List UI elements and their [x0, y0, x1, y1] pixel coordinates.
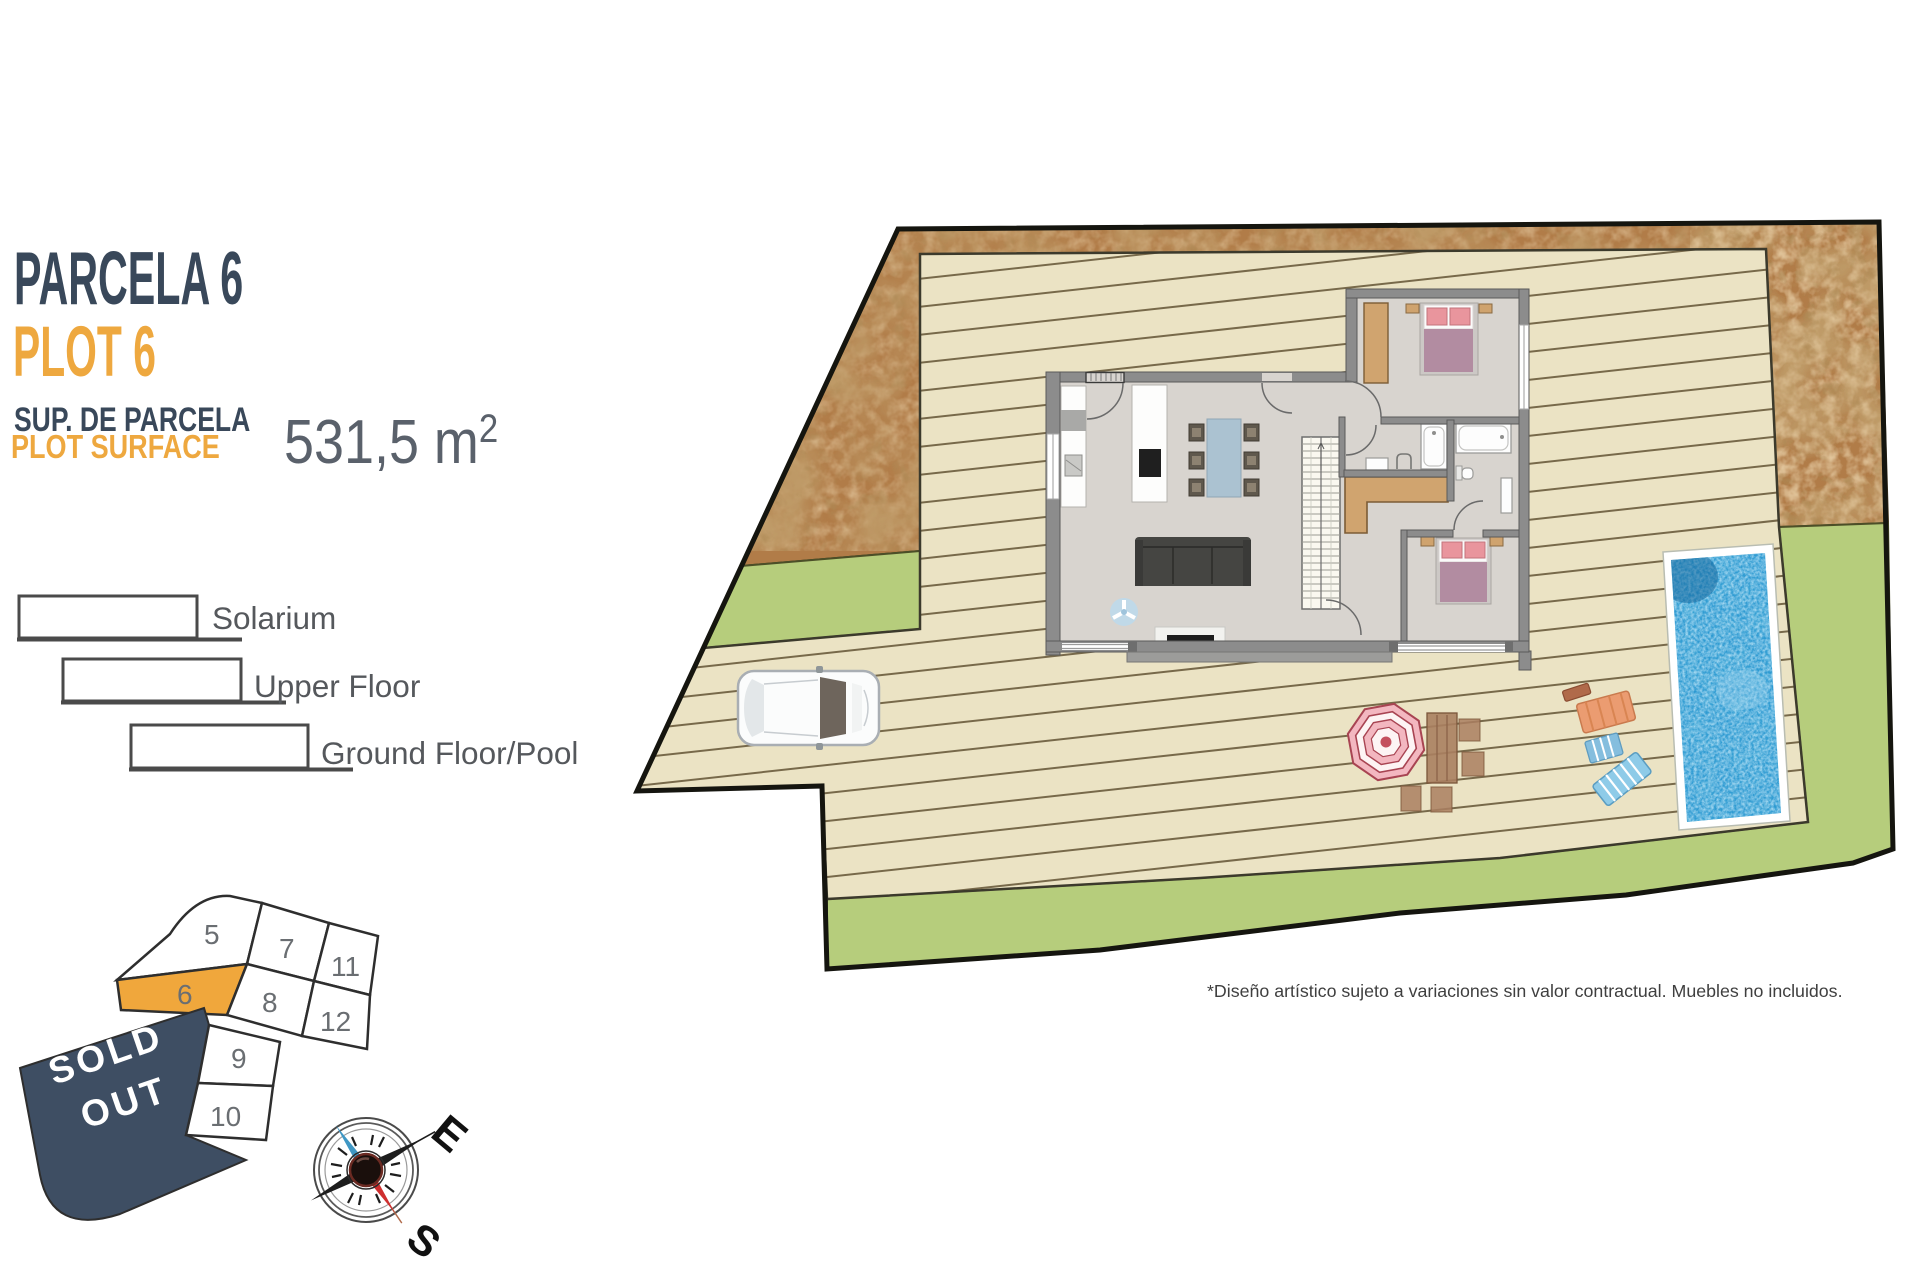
- svg-text:5: 5: [204, 919, 220, 950]
- svg-text:Upper Floor: Upper Floor: [254, 668, 420, 704]
- svg-text:6: 6: [177, 979, 193, 1010]
- svg-text:10: 10: [210, 1101, 241, 1132]
- svg-text:*Diseño artístico sujeto a var: *Diseño artístico sujeto a variaciones s…: [1207, 981, 1843, 1001]
- svg-text:PARCELA 6: PARCELA 6: [14, 236, 243, 320]
- svg-text:Ground Floor/Pool: Ground Floor/Pool: [321, 735, 578, 771]
- svg-text:Solarium: Solarium: [212, 600, 336, 636]
- svg-text:12: 12: [320, 1006, 351, 1037]
- svg-text:531,5 m2: 531,5 m2: [284, 406, 498, 477]
- svg-text:8: 8: [262, 987, 278, 1018]
- svg-text:7: 7: [279, 933, 295, 964]
- svg-text:PLOT 6: PLOT 6: [13, 313, 156, 391]
- svg-text:11: 11: [331, 951, 360, 982]
- svg-text:PLOT SURFACE: PLOT SURFACE: [11, 430, 220, 466]
- svg-text:9: 9: [231, 1043, 247, 1074]
